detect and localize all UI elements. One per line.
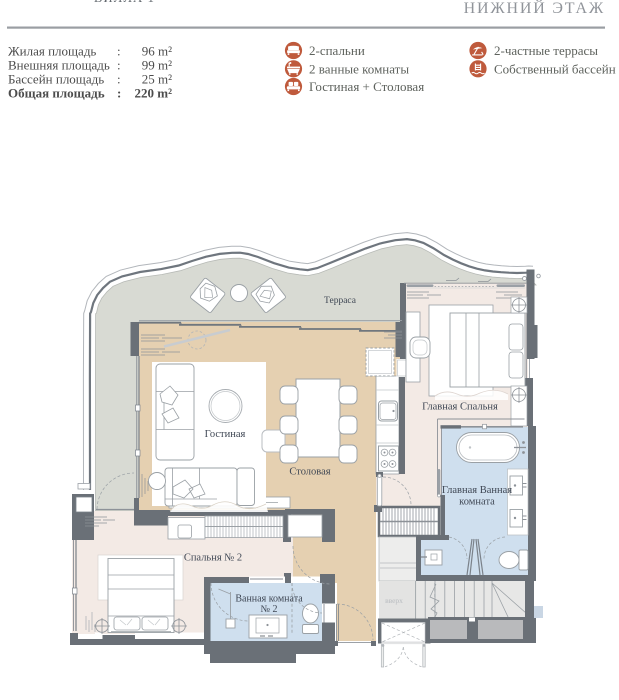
svg-text:комната: комната: [459, 497, 495, 508]
svg-text:Столовая: Столовая: [289, 467, 330, 478]
svg-text::: :: [117, 86, 121, 101]
svg-text::: :: [117, 44, 121, 59]
svg-text:Гостиная + Столовая: Гостиная + Столовая: [309, 79, 424, 94]
svg-text:Гостиная: Гостиная: [205, 429, 246, 440]
svg-text:Внешняя площадь: Внешняя площадь: [8, 58, 110, 73]
svg-text:Общая площадь: Общая площадь: [8, 86, 105, 101]
svg-text:220 m²: 220 m²: [135, 86, 173, 101]
svg-text:2-частные террасы: 2-частные террасы: [494, 43, 598, 58]
svg-text:25 m²: 25 m²: [142, 72, 172, 87]
svg-text:№ 2: № 2: [260, 604, 277, 615]
svg-text::: :: [117, 72, 121, 87]
svg-text:2-спальни: 2-спальни: [309, 43, 365, 58]
svg-text::: :: [117, 58, 121, 73]
svg-text:Ванная комната: Ванная комната: [235, 594, 303, 605]
svg-text:Главная Спальня: Главная Спальня: [422, 402, 498, 413]
svg-text:99 m²: 99 m²: [142, 58, 172, 73]
svg-text:Терраса: Терраса: [324, 296, 357, 306]
svg-text:НИЖНИЙ ЭТАЖ: НИЖНИЙ ЭТАЖ: [464, 0, 605, 17]
svg-text:вверх: вверх: [385, 596, 403, 605]
svg-text:Собственный бассейн: Собственный бассейн: [494, 61, 616, 76]
svg-text:ВИЛЛА 1: ВИЛЛА 1: [94, 0, 155, 5]
svg-text:Жилая площадь: Жилая площадь: [8, 44, 96, 59]
svg-text:2 ванные комнаты: 2 ванные комнаты: [309, 61, 409, 76]
svg-text:Главная Ванная: Главная Ванная: [442, 485, 512, 496]
svg-text:Спальня № 2: Спальня № 2: [184, 553, 242, 564]
svg-text:Бассейн площадь: Бассейн площадь: [8, 72, 104, 87]
svg-text:96 m²: 96 m²: [142, 44, 172, 59]
